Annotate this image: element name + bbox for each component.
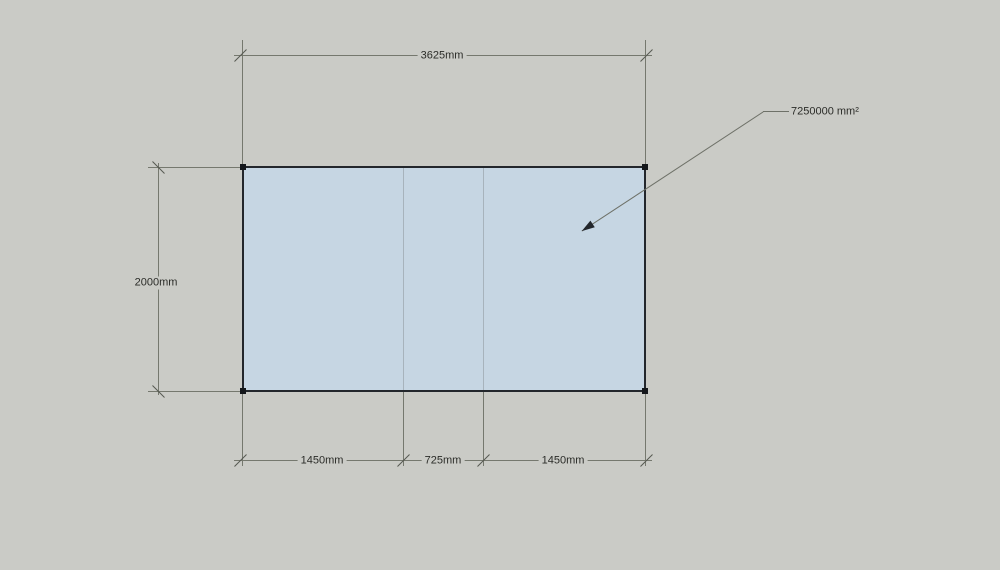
face-division-line[interactable] (483, 168, 484, 390)
rectangle-face[interactable] (242, 166, 646, 392)
area-annotation-label[interactable]: 7250000 mm² (791, 106, 859, 119)
extension-line (148, 391, 243, 392)
dimension-label-bottom-middle[interactable]: 725mm (422, 455, 465, 468)
extension-line (483, 392, 484, 466)
face-division-line[interactable] (403, 168, 404, 390)
extension-line (242, 392, 243, 466)
corner-endpoint-marker (642, 164, 648, 170)
extension-line (645, 40, 646, 167)
leader-line-stub (763, 111, 789, 112)
extension-line (403, 392, 404, 466)
extension-line (148, 167, 243, 168)
corner-endpoint-marker (240, 388, 246, 394)
drawing-canvas[interactable]: 3625mm 2000mm 1450mm 725mm 1450mm 725000… (0, 0, 1000, 570)
extension-line (645, 392, 646, 466)
extension-line (242, 40, 243, 167)
dimension-label-top[interactable]: 3625mm (418, 50, 467, 63)
dimension-label-bottom-right[interactable]: 1450mm (539, 455, 588, 468)
corner-endpoint-marker (642, 388, 648, 394)
dimension-label-bottom-left[interactable]: 1450mm (298, 455, 347, 468)
corner-endpoint-marker (240, 164, 246, 170)
dimension-label-left[interactable]: 2000mm (132, 277, 181, 290)
